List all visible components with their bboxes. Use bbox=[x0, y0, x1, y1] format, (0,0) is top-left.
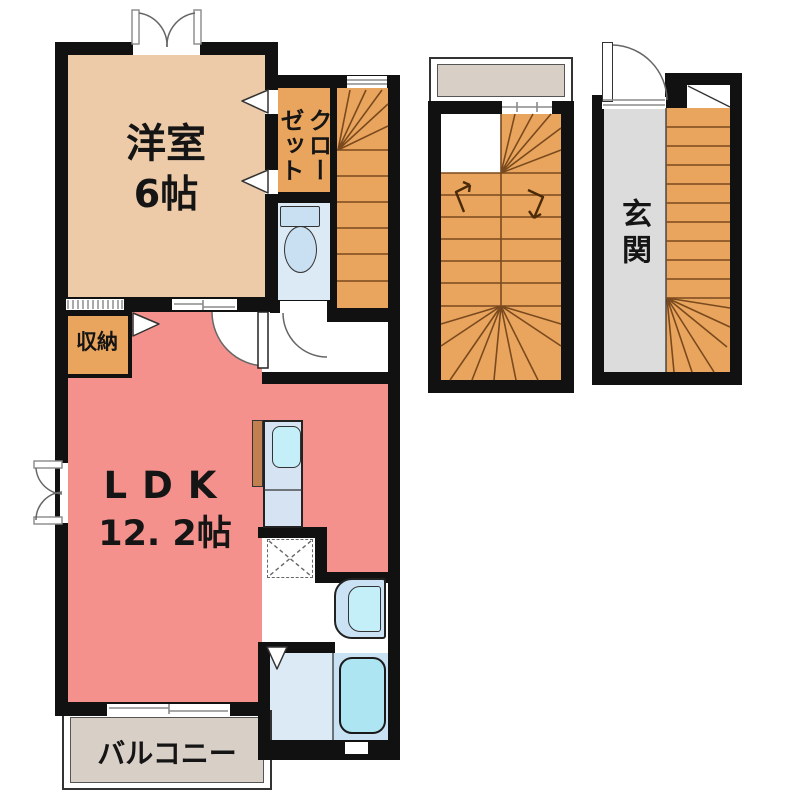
stairwell-direction-arrows bbox=[456, 182, 543, 218]
western-room-name: 洋室 bbox=[76, 118, 256, 170]
storage-door-triangle bbox=[133, 313, 159, 336]
washer-space-cross bbox=[269, 541, 311, 576]
western-room-size: 6帖 bbox=[76, 170, 256, 219]
entrance-label: 玄関 bbox=[611, 186, 653, 281]
entrance-hatch-diagonal bbox=[688, 86, 730, 107]
storage-label: 収納 bbox=[64, 329, 130, 356]
balcony-label: バルコニー bbox=[72, 736, 262, 772]
floorplan-canvas: 洋室 6帖 クローゼット 収納 LDK 12. 2帖 バルコニー 玄関 bbox=[0, 0, 800, 800]
western-room-label: 洋室 6帖 bbox=[76, 118, 256, 219]
ldk-size-label: 12. 2帖 bbox=[70, 512, 260, 558]
entrance-door-arc bbox=[613, 45, 667, 100]
casement-window-left bbox=[34, 461, 62, 524]
ldk-door-swing bbox=[212, 312, 268, 368]
casement-window-top bbox=[132, 10, 201, 47]
entrance-stairs-treads bbox=[666, 108, 730, 372]
closet-door-triangle-1 bbox=[242, 90, 268, 113]
closet-label: クローゼット bbox=[276, 98, 332, 192]
stairwell-treads bbox=[441, 114, 561, 380]
toilet-door-swing bbox=[283, 313, 327, 357]
ldk-name-label: LDK bbox=[70, 462, 250, 510]
accordion-ticks bbox=[68, 300, 122, 309]
bath-door-triangle bbox=[267, 647, 287, 669]
stairs-upper-treads bbox=[337, 90, 388, 281]
